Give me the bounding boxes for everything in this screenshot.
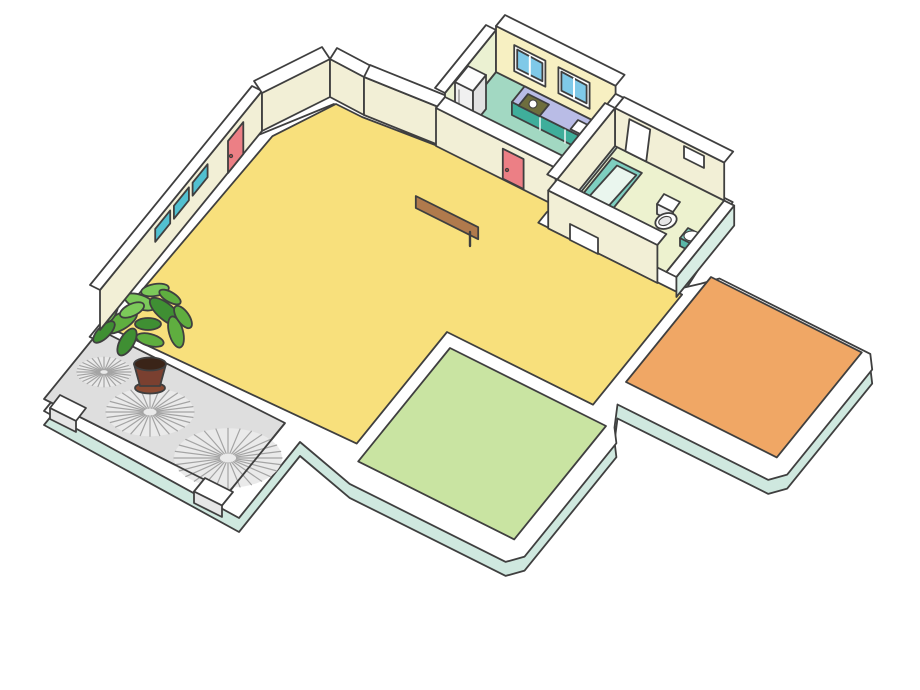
stove-burner xyxy=(529,100,537,108)
floor-plan-stage xyxy=(0,0,920,690)
plant-pot-rim xyxy=(134,358,166,371)
apartment-floorplan-illustration xyxy=(0,0,920,690)
plant-leaf xyxy=(135,318,161,330)
kitchen-door-knob xyxy=(505,168,508,171)
entry-door-knob xyxy=(229,154,232,157)
